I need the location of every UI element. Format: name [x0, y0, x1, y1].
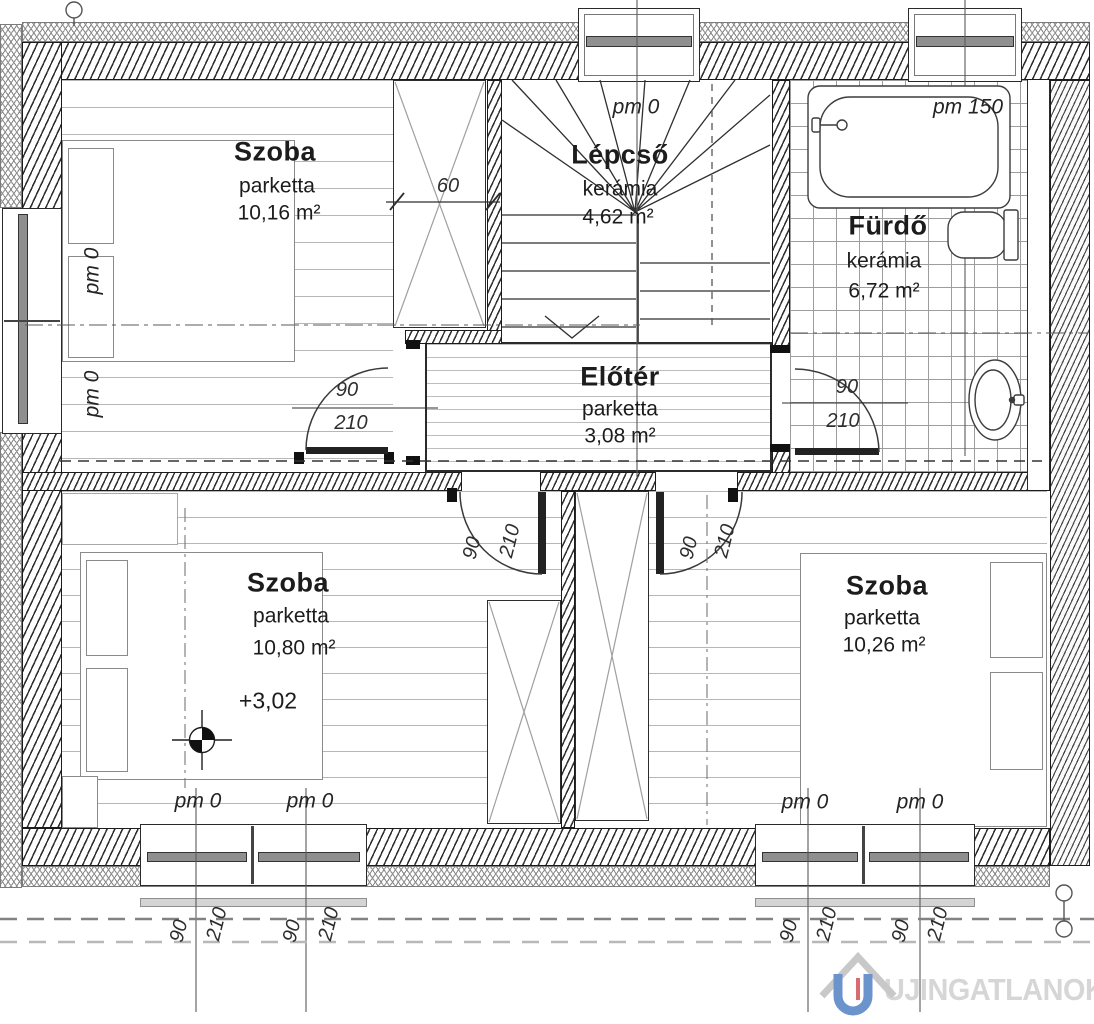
parapet-label-br-1: pm 0 [782, 792, 829, 813]
parapet-label-bl-2: pm 0 [287, 791, 334, 812]
door-dim-width-bl: 90 [460, 535, 485, 561]
washbasin-icon [969, 360, 1024, 440]
parapet-label-bl-1: pm 0 [175, 791, 222, 812]
door-dim-width-bath: 90 [836, 377, 858, 397]
window-dim-width-bl-1: 90 [167, 918, 192, 944]
toilet-icon [948, 210, 1018, 260]
door-dim-width-br: 90 [677, 535, 702, 561]
parapet-label-top: pm 0 [613, 97, 660, 118]
parapet-label-bath: pm 150 [933, 97, 1003, 118]
room-floor-eloter: parketta [582, 399, 658, 420]
room-floor-szoba-top-left: parketta [239, 176, 315, 197]
window-dim-width-br-2: 90 [889, 918, 914, 944]
logo-house-icon [822, 957, 894, 1011]
room-name-lepcso: Lépcső [571, 142, 669, 169]
level-mark-label: +3,02 [239, 690, 297, 713]
room-area-szoba-top-left: 10,16 m² [238, 203, 321, 224]
room-name-furdo: Fürdő [849, 213, 928, 240]
window-dim-width-br-1: 90 [777, 918, 802, 944]
door-dim-height-tl: 210 [334, 413, 367, 433]
parapet-label-left-1: pm 0 [82, 248, 103, 295]
floor-plan: UJINGATLANOK.HU [0, 0, 1094, 1024]
room-area-szoba-bottom-left: 10,80 m² [253, 638, 336, 659]
room-area-lepcso: 4,62 m² [582, 207, 653, 228]
room-name-szoba-bottom-right: Szoba [846, 573, 928, 600]
room-name-eloter: Előtér [580, 364, 660, 391]
level-marker-icon [172, 710, 232, 770]
linework-overlay [0, 0, 1094, 1024]
room-area-szoba-bottom-right: 10,26 m² [843, 635, 926, 656]
dimension-cabinet-depth: 60 [437, 176, 459, 196]
room-area-furdo: 6,72 m² [848, 281, 919, 302]
window-dim-width-bl-2: 90 [280, 918, 305, 944]
door-dim-height-bath: 210 [826, 411, 859, 431]
room-floor-szoba-bottom-left: parketta [253, 606, 329, 627]
parapet-label-br-2: pm 0 [897, 792, 944, 813]
room-floor-szoba-bottom-right: parketta [844, 608, 920, 629]
room-name-szoba-top-left: Szoba [234, 139, 316, 166]
door-dim-width-tl: 90 [336, 380, 358, 400]
parapet-label-left-2: pm 0 [82, 371, 103, 418]
room-area-eloter: 3,08 m² [584, 426, 655, 447]
room-floor-lepcso: kerámia [583, 179, 658, 200]
room-floor-furdo: kerámia [847, 251, 922, 272]
room-name-szoba-bottom-left: Szoba [247, 570, 329, 597]
